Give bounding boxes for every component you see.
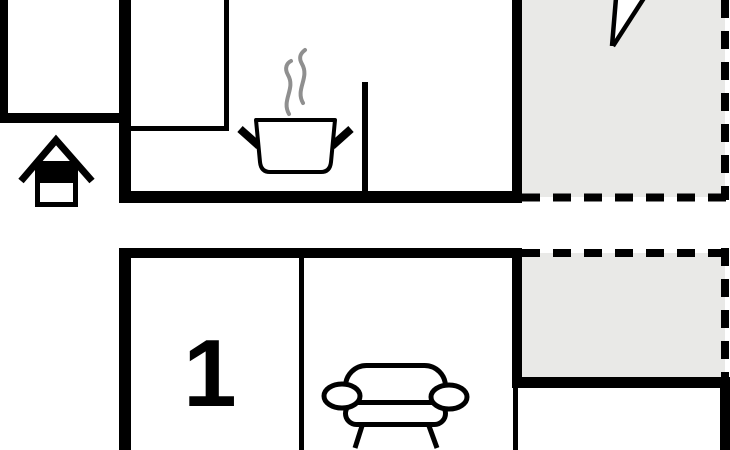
wall-closet-right-thin: [224, 0, 229, 131]
sofa-armrest-left: [324, 384, 360, 408]
sofa-leg-right: [429, 426, 437, 448]
floor-plan-svg: 1: [0, 0, 730, 450]
wall-kitchen-bottom-exterior: [119, 191, 522, 203]
wall-lower-top-exterior: [119, 248, 522, 258]
wall-lower-right-exterior-upper: [512, 248, 522, 385]
steam-icon: [300, 50, 305, 103]
wall-upper-right-exterior: [512, 0, 522, 203]
floor-plan: 1: [0, 0, 730, 450]
wall-upper-vertical-main: [119, 0, 131, 203]
wall-lower-left-exterior: [119, 248, 131, 450]
sofa-leg-left: [355, 426, 362, 448]
wall-upper-left-room-bottom: [0, 113, 131, 123]
lower-terrace-area: [522, 253, 725, 377]
house-upper-half: [35, 161, 78, 183]
steam-icon: [286, 61, 291, 114]
house-icon: [21, 140, 92, 207]
wall-below-terrace-thin: [513, 388, 518, 450]
sofa-icon: [324, 366, 467, 449]
wall-lower-terrace-bottom: [512, 377, 730, 388]
cooking-pot-icon: [240, 50, 351, 172]
wall-kitchen-right-thin: [362, 82, 368, 192]
wall-closet-bottom-thin: [131, 126, 229, 131]
room-1-label: 1: [183, 320, 236, 427]
wall-lower-right-exterior-edge: [720, 385, 730, 450]
pot-body: [256, 120, 335, 172]
wall-upper-left-exterior: [0, 0, 8, 123]
sofa-armrest-right: [431, 385, 467, 409]
wall-room1-right-thin: [299, 258, 304, 450]
sofa-seat: [346, 403, 446, 425]
